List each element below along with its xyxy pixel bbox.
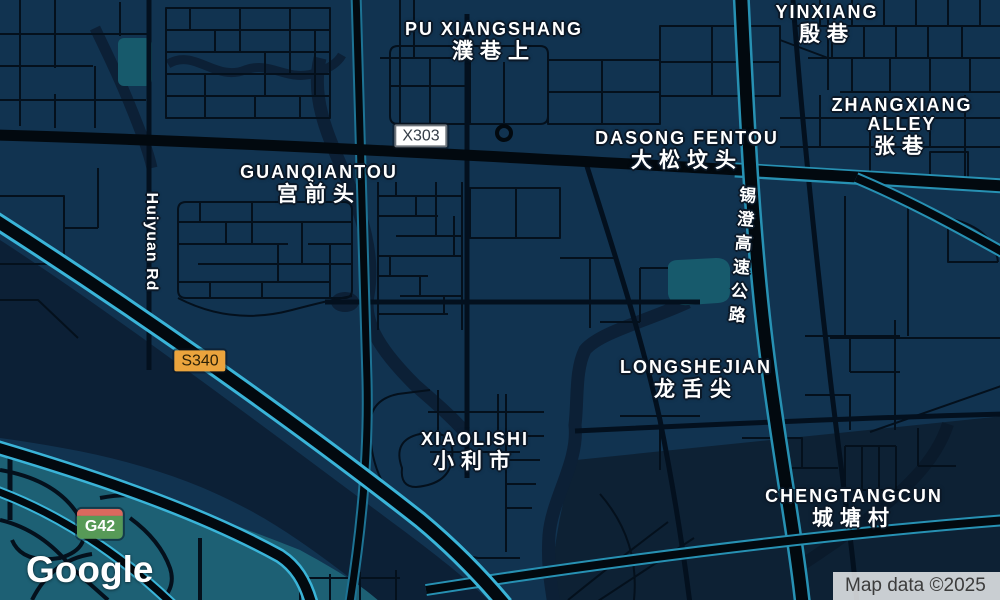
route-badge-s340: S340 (174, 350, 225, 371)
place-name-zh: 龙舌尖 (620, 379, 772, 401)
place-name-zh: 宫前头 (240, 184, 398, 206)
place-name-en: CHENGTANGCUN (765, 487, 943, 506)
route-number: S340 (181, 352, 218, 369)
place-label-dasong-fentou: DASONG FENTOU 大松坟头 (595, 129, 779, 172)
route-badge-x303: X303 (394, 124, 447, 147)
road-label-huiyuan-rd: Huiyuan Rd (142, 193, 160, 292)
map-canvas[interactable]: PU XIANGSHANG 濮巷上 YINXIANG 殷巷 ZHANGXIANG… (0, 0, 1000, 600)
place-name-zh: 大松坟头 (595, 150, 779, 172)
g42-red-cap (77, 509, 123, 516)
place-label-chengtangcun: CHENGTANGCUN 城塘村 (765, 487, 943, 530)
place-name-zh: 濮巷上 (405, 41, 583, 63)
route-number: X303 (402, 127, 439, 144)
place-name-zh: 城塘村 (765, 508, 943, 530)
place-label-longshejian: LONGSHEJIAN 龙舌尖 (620, 358, 772, 401)
place-name-zh: 张巷 (812, 136, 992, 158)
route-badge-g42: G42 (77, 509, 123, 539)
map-attribution: Map data ©2025 (833, 572, 1000, 600)
place-name-en: DASONG FENTOU (595, 129, 779, 148)
place-name-en: ZHANGXIANG ALLEY (812, 96, 992, 134)
place-name-en: LONGSHEJIAN (620, 358, 772, 377)
place-label-yinxiang: YINXIANG 殷巷 (775, 3, 878, 46)
place-label-pu-xiangshang: PU XIANGSHANG 濮巷上 (405, 20, 583, 63)
place-name-en: PU XIANGSHANG (405, 20, 583, 39)
place-label-guanqiantou: GUANQIANTOU 宫前头 (240, 163, 398, 206)
roundabout (497, 126, 511, 140)
place-label-xiaolishi: XIAOLISHI 小利市 (421, 430, 529, 473)
place-name-zh: 小利市 (421, 451, 529, 473)
google-logo[interactable]: Google (26, 549, 153, 591)
place-label-zhangxiang-alley: ZHANGXIANG ALLEY 张巷 (812, 96, 992, 158)
place-name-en: YINXIANG (775, 3, 878, 22)
place-name-zh: 殷巷 (775, 24, 878, 46)
place-name-en: GUANQIANTOU (240, 163, 398, 182)
place-name-en: XIAOLISHI (421, 430, 529, 449)
route-number: G42 (77, 516, 123, 539)
